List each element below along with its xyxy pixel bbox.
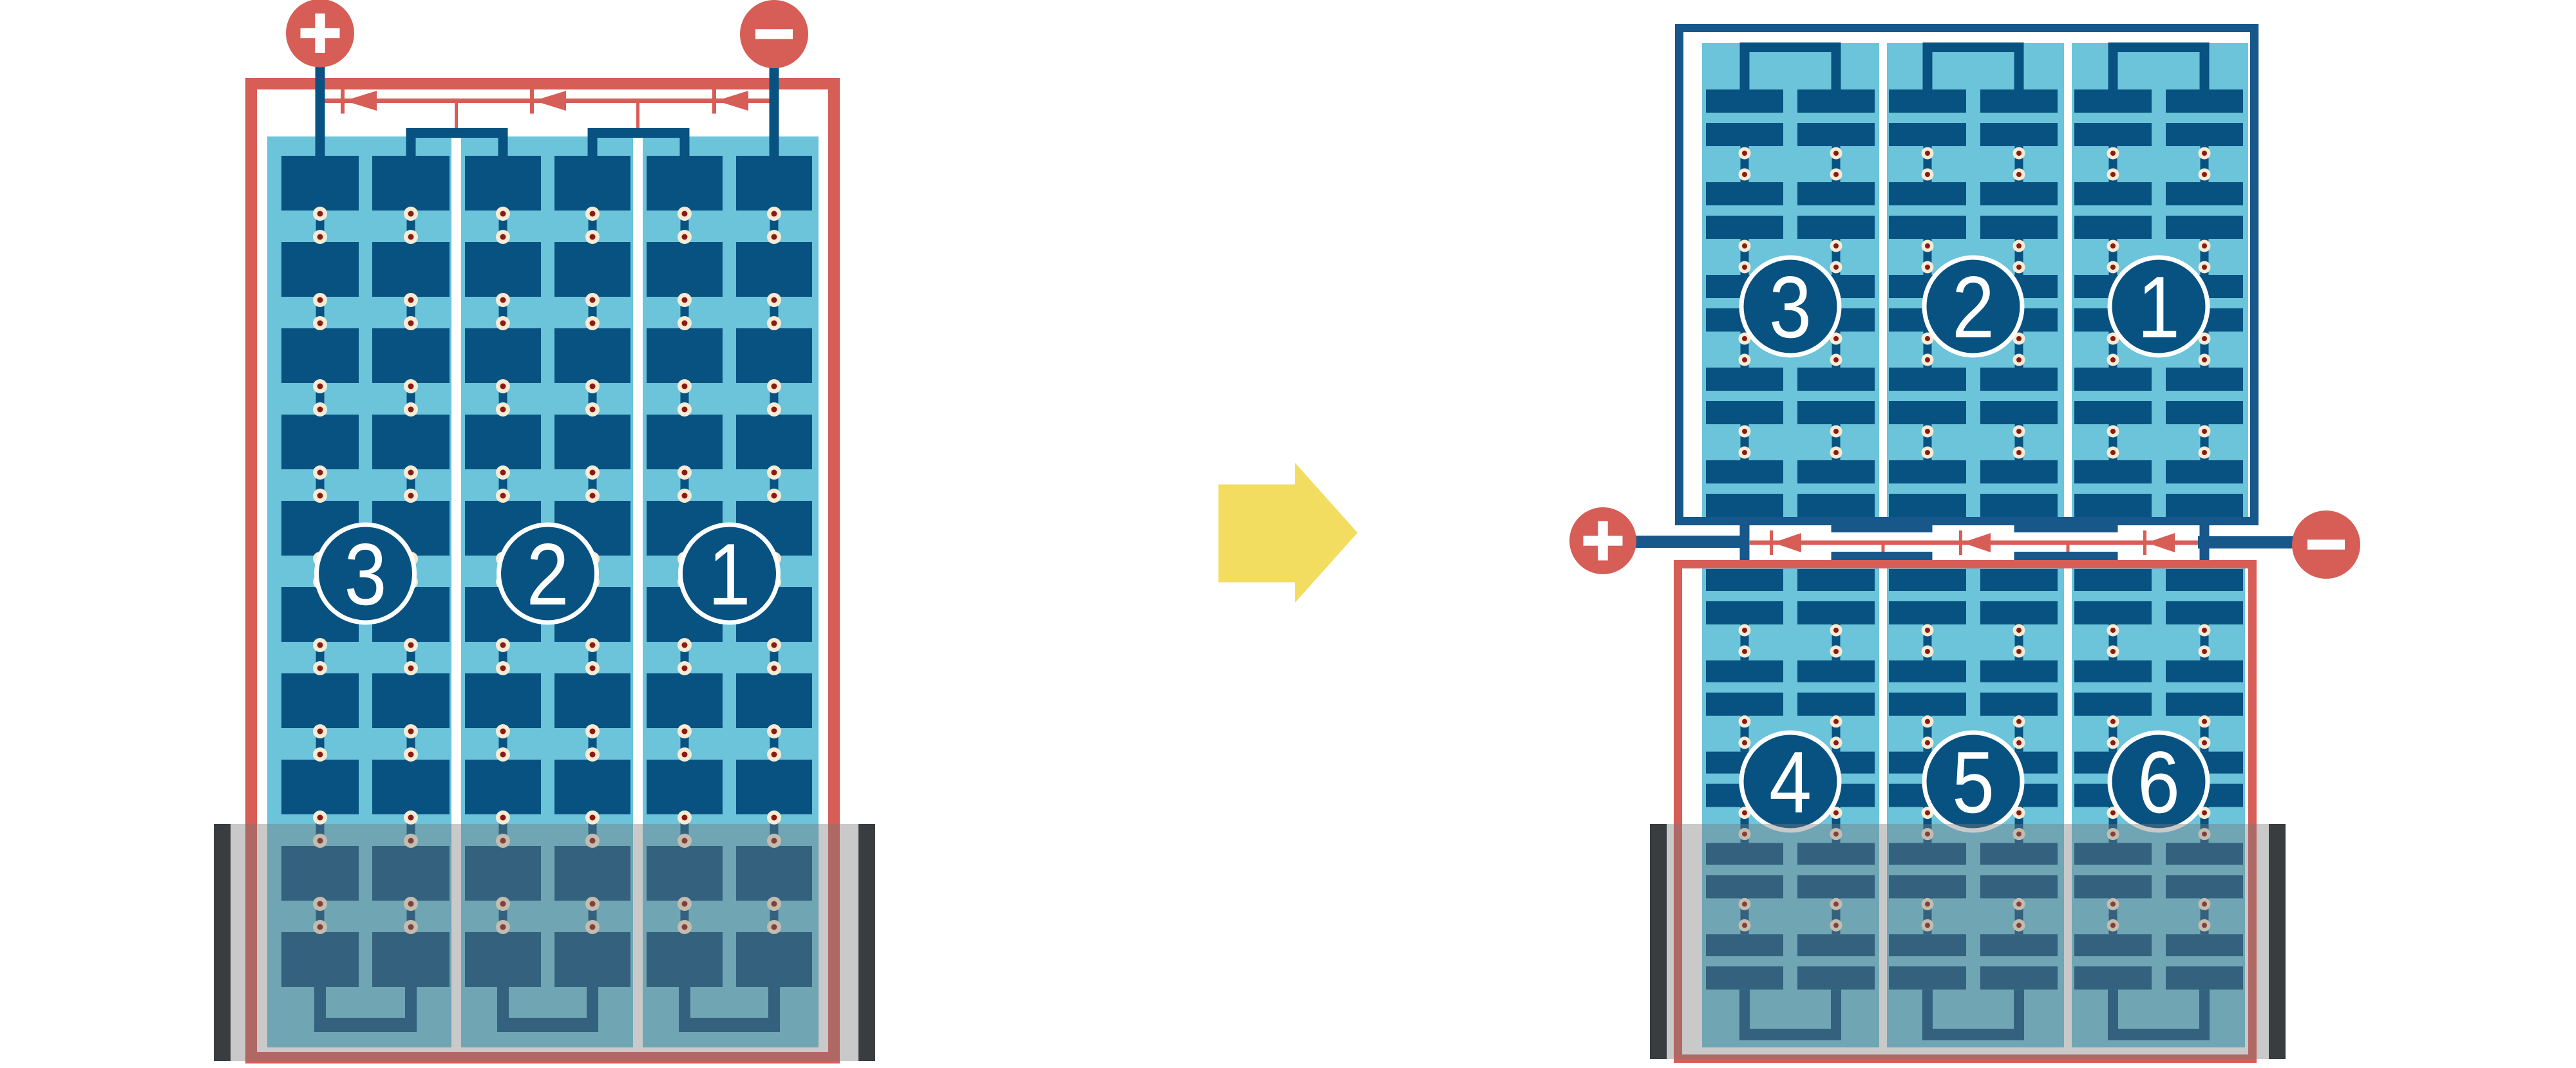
svg-text:1: 1: [708, 525, 751, 623]
svg-text:6: 6: [2137, 733, 2180, 831]
svg-text:3: 3: [1769, 258, 1812, 356]
svg-text:2: 2: [1952, 258, 1994, 356]
svg-text:1: 1: [2137, 258, 2180, 356]
svg-text:3: 3: [345, 525, 387, 623]
svg-text:4: 4: [1769, 733, 1812, 831]
svg-text:5: 5: [1952, 733, 1994, 831]
svg-text:2: 2: [527, 525, 569, 623]
